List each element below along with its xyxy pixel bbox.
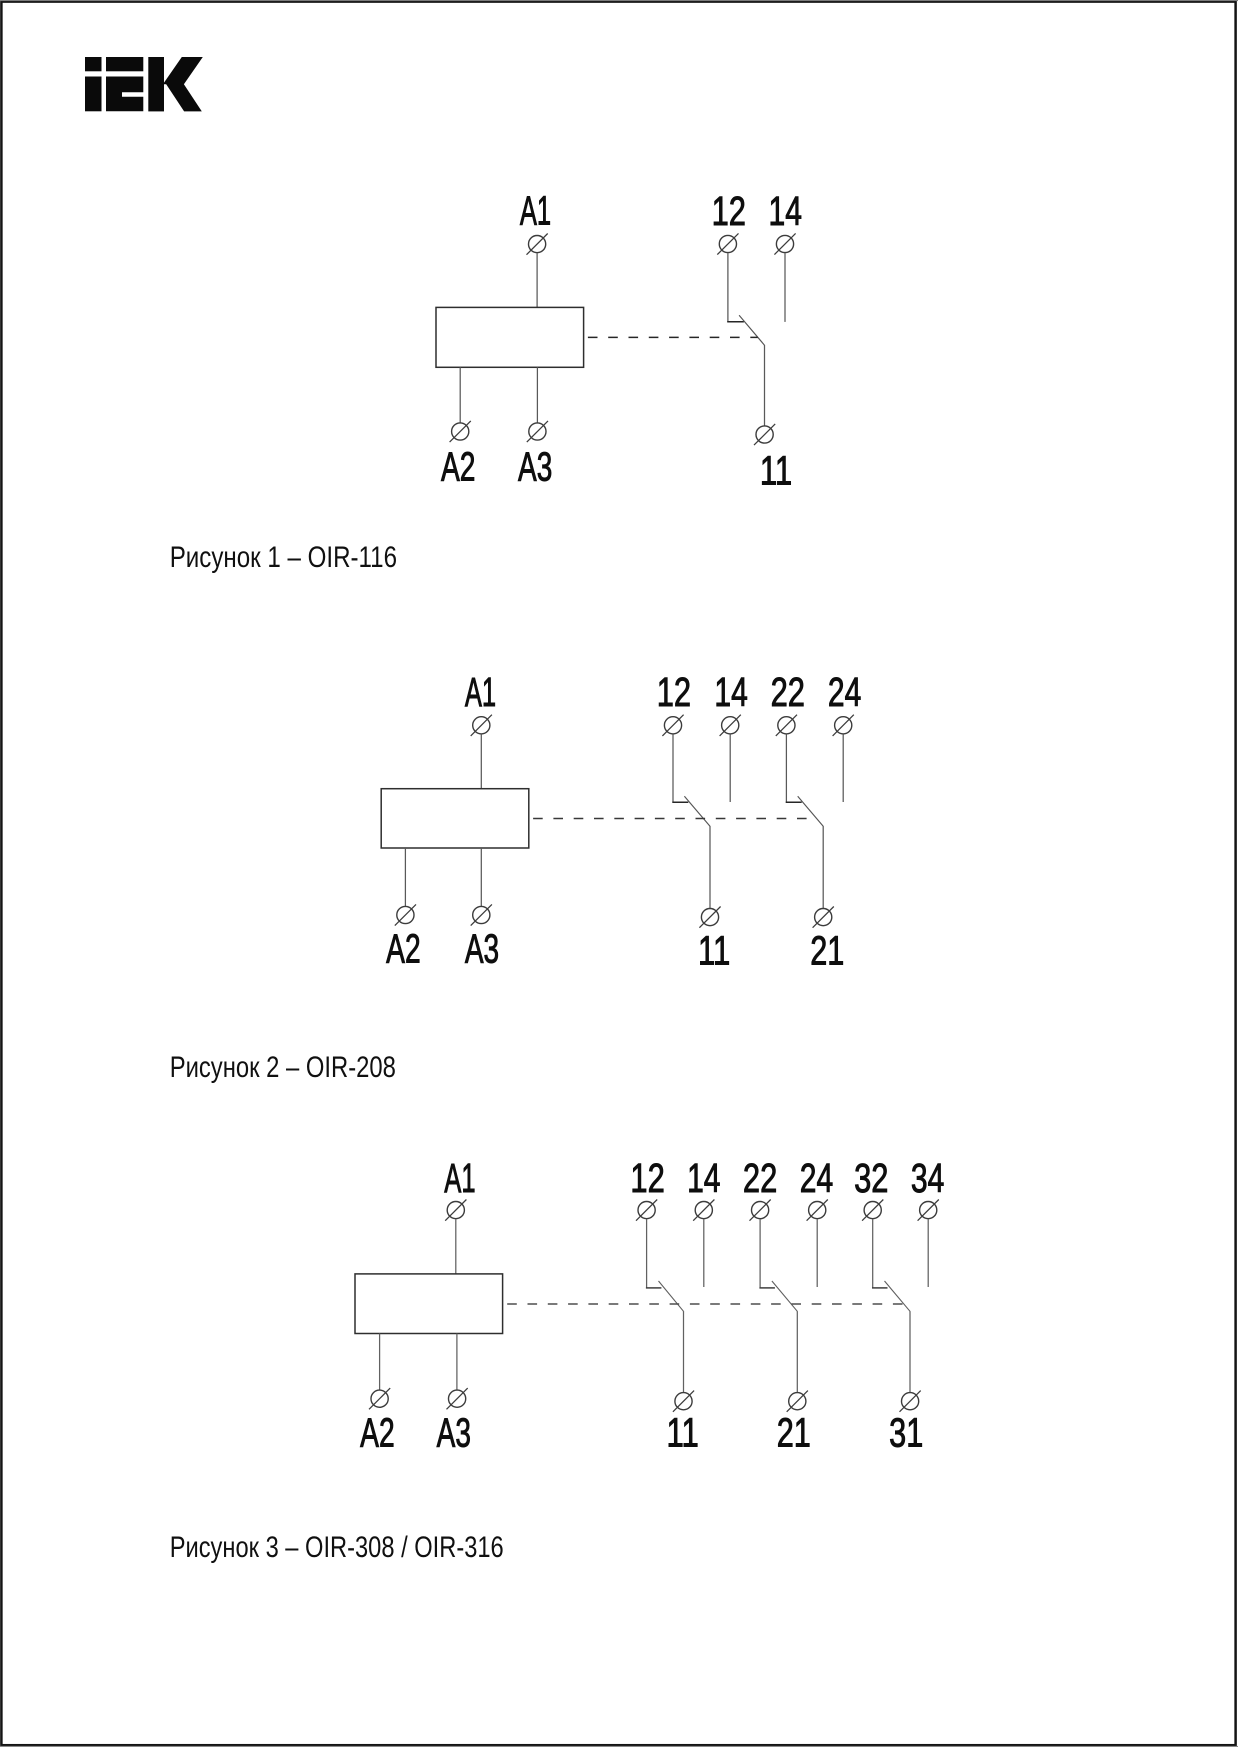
svg-text:24: 24	[828, 670, 861, 715]
svg-text:A3: A3	[518, 445, 552, 490]
svg-text:A3: A3	[465, 926, 499, 971]
svg-text:11: 11	[698, 928, 730, 974]
svg-text:A2: A2	[386, 927, 421, 972]
svg-text:14: 14	[714, 670, 747, 715]
svg-text:Рисунок 1 – OIR-116: Рисунок 1 – OIR-116	[170, 541, 397, 574]
svg-text:24: 24	[800, 1156, 833, 1201]
svg-text:14: 14	[768, 189, 801, 234]
svg-text:32: 32	[854, 1155, 888, 1201]
svg-text:A2: A2	[441, 445, 476, 490]
svg-text:31: 31	[889, 1409, 923, 1455]
svg-text:21: 21	[777, 1409, 811, 1455]
svg-text:A3: A3	[437, 1411, 471, 1456]
svg-text:22: 22	[743, 1155, 777, 1201]
svg-text:34: 34	[911, 1156, 944, 1201]
svg-text:14: 14	[687, 1156, 720, 1201]
svg-text:A1: A1	[520, 189, 551, 234]
svg-text:Рисунок 3 – OIR-308 / OIR-316: Рисунок 3 – OIR-308 / OIR-316	[170, 1531, 504, 1564]
svg-text:21: 21	[810, 927, 844, 973]
svg-text:11: 11	[667, 1410, 699, 1456]
svg-text:A1: A1	[465, 670, 496, 715]
svg-text:12: 12	[712, 188, 746, 234]
svg-text:12: 12	[657, 669, 691, 715]
svg-text:A1: A1	[444, 1156, 475, 1201]
svg-text:11: 11	[760, 448, 792, 494]
svg-text:Рисунок 2 – OIR-208: Рисунок 2 – OIR-208	[170, 1051, 396, 1084]
svg-text:A2: A2	[360, 1411, 395, 1456]
svg-text:12: 12	[630, 1155, 664, 1201]
svg-text:22: 22	[771, 669, 805, 715]
